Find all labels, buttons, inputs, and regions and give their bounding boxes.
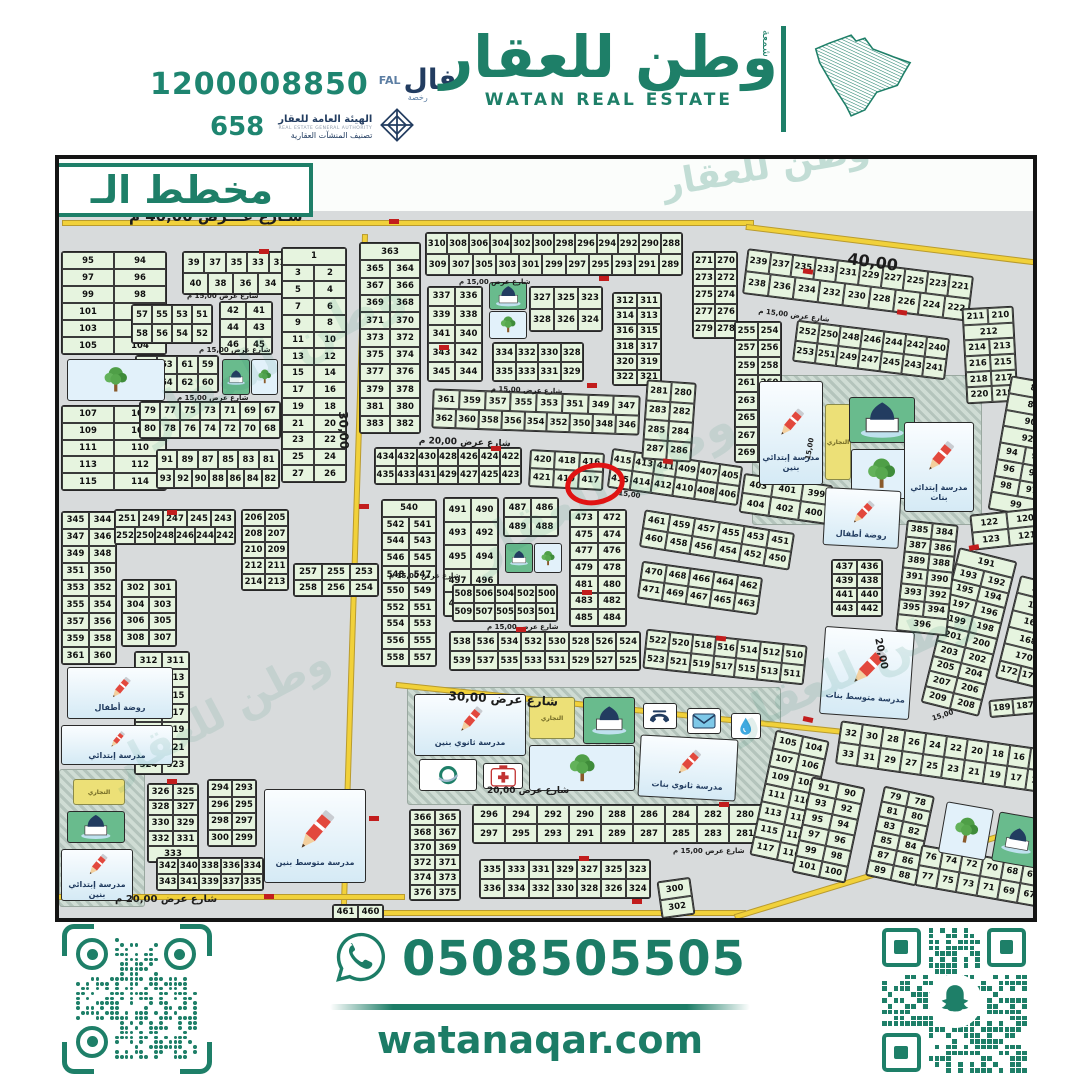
plot-27: 27 <box>899 751 923 775</box>
plot-261: 261 <box>735 375 758 393</box>
plot-486: 486 <box>531 498 558 517</box>
plot-block: 189187185 <box>988 694 1037 718</box>
red-mark <box>167 510 177 515</box>
plot-383: 383 <box>360 416 390 433</box>
plot-295: 295 <box>505 824 537 843</box>
plot-554: 554 <box>382 616 409 633</box>
plot-546: 546 <box>382 550 409 567</box>
school-block: مدرسة ثانوي بنات <box>637 734 738 801</box>
plot-91: 91 <box>157 450 177 469</box>
plot-322: 322 <box>613 370 637 385</box>
plot-215: 215 <box>990 354 1016 371</box>
plot-325: 325 <box>173 784 198 800</box>
plot-369: 369 <box>360 295 390 312</box>
plot-344: 344 <box>455 362 482 381</box>
plot-306: 306 <box>469 233 490 254</box>
plot-23: 23 <box>282 432 314 449</box>
kindergarten-block: روضة أطفال <box>823 487 902 549</box>
plot-291: 291 <box>569 824 601 843</box>
plot-85: 85 <box>218 450 238 469</box>
plot-19: 19 <box>282 398 314 415</box>
whatsapp-icon <box>334 930 388 988</box>
commercial-label: التجاري <box>541 715 563 722</box>
plot-556: 556 <box>382 633 409 650</box>
facility-label: مدرسة إبتدائي <box>88 751 145 760</box>
red-mark <box>264 894 274 899</box>
plot-376: 376 <box>390 364 420 381</box>
plot-254: 254 <box>758 322 781 340</box>
plot-block: 3633653643673663693683713703733723753743… <box>359 242 421 434</box>
plot-241: 241 <box>922 357 946 379</box>
plot-252: 252 <box>796 321 820 343</box>
plot-block: 4734724754744774764794784814804834824854… <box>569 509 627 627</box>
plot-185: 185 <box>1036 695 1037 713</box>
plot-296: 296 <box>473 805 505 824</box>
plot-354: 354 <box>89 596 116 613</box>
plot-320: 320 <box>613 354 637 369</box>
plot-528: 528 <box>569 632 593 651</box>
plot-450: 450 <box>764 548 792 570</box>
brand-vertical-word: شمعة <box>760 30 773 132</box>
plot-430: 430 <box>417 448 438 466</box>
street-label: شارع عرض 15,00 م <box>187 292 259 300</box>
plot-81: 81 <box>259 450 279 469</box>
plot-489: 489 <box>504 517 531 536</box>
plot-340: 340 <box>178 858 199 874</box>
plot-73: 73 <box>200 402 220 420</box>
plot-534: 534 <box>498 632 522 651</box>
plot-330: 330 <box>538 343 561 362</box>
plot-56: 56 <box>152 324 172 343</box>
plot-553: 553 <box>409 616 436 633</box>
plot-536: 536 <box>474 632 498 651</box>
plot-375: 375 <box>435 885 460 900</box>
plot-365: 365 <box>360 260 390 277</box>
plot-block: 4344324304284264244224354334314294274254… <box>374 447 522 485</box>
red-mark <box>587 383 597 388</box>
plot-256: 256 <box>322 580 350 596</box>
plot-242: 242 <box>903 334 927 356</box>
plot-542: 542 <box>382 517 409 534</box>
plot-360: 360 <box>89 647 116 664</box>
plot-312: 312 <box>613 293 637 308</box>
plot-263: 263 <box>735 392 758 410</box>
plot-298: 298 <box>208 813 232 830</box>
plot-61: 61 <box>177 356 198 374</box>
plot-500: 500 <box>536 585 557 603</box>
mosque-icon <box>489 282 527 310</box>
red-mark <box>516 627 526 632</box>
plot-443: 443 <box>832 602 857 616</box>
plot-84: 84 <box>244 469 261 488</box>
plot-465: 465 <box>709 590 735 611</box>
snapchat-ghost-icon <box>928 974 982 1028</box>
plot-427: 427 <box>458 466 479 484</box>
plot-361: 361 <box>62 647 89 664</box>
plot-251: 251 <box>115 510 139 527</box>
plot-298: 298 <box>554 233 575 254</box>
plot-58: 58 <box>132 324 152 343</box>
plot-block: 2522502482462442422402532512492472452432… <box>792 320 950 380</box>
plot-284: 284 <box>665 805 697 824</box>
plot-488: 488 <box>531 517 558 536</box>
plot-255: 255 <box>735 322 758 340</box>
plot-359: 359 <box>459 390 485 410</box>
plot-250: 250 <box>135 527 155 544</box>
plot-332: 332 <box>516 343 539 362</box>
plot-425: 425 <box>479 466 500 484</box>
brand-divider-bar <box>781 26 786 132</box>
plot-272: 272 <box>715 269 737 286</box>
plot-42: 42 <box>220 302 246 319</box>
plot-328: 328 <box>530 309 554 331</box>
plot-98: 98 <box>114 286 166 303</box>
facility-label: روضة أطفال <box>95 703 146 712</box>
facility-label: مدرسة متوسط بنات <box>825 691 905 706</box>
plot-59: 59 <box>198 356 219 374</box>
plot-543: 543 <box>409 533 436 550</box>
plot-290: 290 <box>569 805 601 824</box>
plot-26: 26 <box>902 730 926 754</box>
mosque-icon <box>67 811 125 843</box>
plot-483: 483 <box>570 593 598 610</box>
plot-341: 341 <box>428 325 455 344</box>
plot-434: 434 <box>375 448 396 466</box>
plot-295: 295 <box>589 254 612 275</box>
plot-block: 470468466464462471469467465463 <box>637 561 763 616</box>
plot-block: 294293296295298297300299 <box>207 779 257 847</box>
plot-326: 326 <box>554 309 578 331</box>
plot-357: 357 <box>485 391 511 411</box>
plot-101: 101 <box>62 303 114 320</box>
plot-437: 437 <box>832 560 857 574</box>
plot-block: 5755535158565452 <box>131 304 213 344</box>
plot-370: 370 <box>410 840 435 855</box>
plot-338: 338 <box>199 858 220 874</box>
plot-414: 414 <box>629 471 653 493</box>
plot-533: 533 <box>521 651 545 670</box>
plot-402: 402 <box>769 497 801 520</box>
brand-logo: وطن للعقار WATAN REAL ESTATE <box>440 26 778 110</box>
authority-logo: الهيئة العامة للعقار REAL ESTATE GENERAL… <box>278 106 416 148</box>
red-mark <box>599 276 609 281</box>
plot-551: 551 <box>409 600 436 617</box>
plot-328: 328 <box>577 879 601 898</box>
plot-324: 324 <box>626 879 650 898</box>
plot-333: 333 <box>516 362 539 381</box>
plot-255: 255 <box>322 564 350 580</box>
classification-number: 658 <box>210 112 264 142</box>
plot-341: 341 <box>178 874 199 890</box>
plot-361: 361 <box>433 389 459 409</box>
plot-432: 432 <box>396 448 417 466</box>
plot-493: 493 <box>444 522 471 546</box>
plot-332: 332 <box>529 879 553 898</box>
plot-336: 336 <box>221 858 242 874</box>
plot-16: 16 <box>314 382 346 399</box>
comm-block: التجاري <box>825 404 851 480</box>
plot-423: 423 <box>500 466 521 484</box>
plot-87: 87 <box>198 450 218 469</box>
plot-349: 349 <box>587 395 613 415</box>
plot-482: 482 <box>598 593 626 610</box>
plot-345: 345 <box>428 362 455 381</box>
plot-519: 519 <box>689 653 714 674</box>
street-label: شارع عرض 15,00 م <box>459 278 531 286</box>
plot-334: 334 <box>493 343 516 362</box>
plot-253: 253 <box>350 564 378 580</box>
plot-3: 3 <box>282 265 314 282</box>
plot-301: 301 <box>149 580 176 597</box>
plot-285: 285 <box>644 419 669 440</box>
comm-block: التجاري <box>73 779 125 805</box>
street-label: 30,00 <box>336 411 351 449</box>
plot-292: 292 <box>618 233 639 254</box>
plot-27: 27 <box>282 465 314 482</box>
plot-71: 71 <box>220 402 240 420</box>
plot-529: 529 <box>569 651 593 670</box>
plot-256: 256 <box>758 340 781 358</box>
plot-521: 521 <box>666 651 691 672</box>
red-mark <box>491 446 501 451</box>
plot-213: 213 <box>989 338 1015 355</box>
plot-406: 406 <box>715 483 739 505</box>
plot-258: 258 <box>294 580 322 596</box>
plot-456: 456 <box>689 536 717 558</box>
plot-339: 339 <box>199 874 220 890</box>
red-mark <box>719 802 729 807</box>
kindergarten-block: روضة أطفال <box>67 667 173 719</box>
plot-356: 356 <box>501 411 525 431</box>
whatsapp-number: 0508505505 <box>402 931 746 987</box>
plot-4: 4 <box>314 281 346 298</box>
plot-314: 314 <box>613 308 637 323</box>
plot-274: 274 <box>715 286 737 303</box>
plot-block: 487486489488 <box>503 497 559 537</box>
plot-251: 251 <box>815 343 839 365</box>
street-label: شارع عرض 15,00 م <box>199 346 271 354</box>
plot-429: 429 <box>438 466 459 484</box>
plot-92: 92 <box>174 469 191 488</box>
plot-367: 367 <box>435 825 460 840</box>
plot-36: 36 <box>233 273 258 294</box>
plot-33: 33 <box>247 252 268 273</box>
plot-294: 294 <box>597 233 618 254</box>
plot-327: 327 <box>577 860 601 879</box>
street-label: شارع عرض 15,00 م <box>177 394 249 402</box>
plot-373: 373 <box>435 870 460 885</box>
red-mark <box>579 856 589 861</box>
plot-452: 452 <box>739 544 767 566</box>
plot-block: 300302 <box>657 877 696 919</box>
plot-24: 24 <box>314 449 346 466</box>
plot-234: 234 <box>793 277 821 302</box>
plot-305: 305 <box>149 613 176 630</box>
plot-212: 212 <box>242 558 265 574</box>
plot-306: 306 <box>122 613 149 630</box>
plot-412: 412 <box>651 474 675 496</box>
street-label: 15,00 <box>931 708 955 722</box>
plot-469: 469 <box>662 583 688 604</box>
plot-270: 270 <box>715 252 737 269</box>
plot-514: 514 <box>736 639 761 660</box>
plot-433: 433 <box>396 466 417 484</box>
plot-246: 246 <box>175 527 195 544</box>
plot-block: 461460 <box>332 904 384 920</box>
plot-86: 86 <box>227 469 244 488</box>
plot-532: 532 <box>521 632 545 651</box>
plot-340: 340 <box>455 325 482 344</box>
plot-487: 487 <box>504 498 531 517</box>
plot-454: 454 <box>714 540 742 562</box>
plot-248: 248 <box>155 527 175 544</box>
plot-block: 508506504502500509507505503501 <box>452 584 558 622</box>
plot-335: 335 <box>493 362 516 381</box>
authority-title-ar: الهيئة العامة للعقار <box>278 114 372 126</box>
plot-242: 242 <box>215 527 235 544</box>
plot-225: 225 <box>903 269 928 294</box>
plot-315: 315 <box>637 324 661 339</box>
plot-511: 511 <box>780 663 805 684</box>
plot-331: 331 <box>529 860 553 879</box>
plot-544: 544 <box>382 533 409 550</box>
plot-244: 244 <box>195 527 215 544</box>
red-mark <box>439 345 449 350</box>
plot-325: 325 <box>554 287 578 309</box>
plot-477: 477 <box>570 543 598 560</box>
plot-331: 331 <box>173 831 198 847</box>
plot-258: 258 <box>758 357 781 375</box>
plot-329: 329 <box>173 815 198 831</box>
plot-22: 22 <box>944 736 968 760</box>
plot-block: 281280283282285284287286 <box>641 379 696 462</box>
plot-334: 334 <box>242 858 263 874</box>
plot-299: 299 <box>232 830 256 847</box>
plot-473: 473 <box>570 510 598 527</box>
facility-label: مدرسة إبتدائي بنات <box>905 483 973 501</box>
plot-51: 51 <box>192 305 212 324</box>
plot-507: 507 <box>474 603 495 621</box>
plot-512: 512 <box>759 642 784 663</box>
plot-77: 77 <box>160 402 180 420</box>
facility-label: مدرسة إبتدائي بنين <box>760 453 822 471</box>
plot-476: 476 <box>598 543 626 560</box>
plot-347: 347 <box>62 529 89 546</box>
plot-377: 377 <box>360 364 390 381</box>
plot-355: 355 <box>510 392 536 412</box>
plot-495: 495 <box>444 545 471 569</box>
plot-221: 221 <box>948 274 973 299</box>
plot-82: 82 <box>262 469 279 488</box>
fal-logo-latin: FAL <box>379 75 401 86</box>
plot-345: 345 <box>62 512 89 529</box>
plot-111: 111 <box>62 440 114 457</box>
plot-304: 304 <box>490 233 511 254</box>
phone-block <box>643 703 677 729</box>
plot-271: 271 <box>693 252 715 269</box>
red-mark <box>389 219 399 224</box>
plot-360: 360 <box>455 409 479 429</box>
plot-93: 93 <box>157 469 174 488</box>
plot-14: 14 <box>314 365 346 382</box>
plot-346: 346 <box>89 529 116 546</box>
plot-218: 218 <box>966 371 992 388</box>
plot-265: 265 <box>735 410 758 428</box>
plot-214: 214 <box>242 574 265 590</box>
plot-472: 472 <box>598 510 626 527</box>
plot-410: 410 <box>672 477 696 499</box>
plot-342: 342 <box>455 343 482 362</box>
plot-336: 336 <box>455 287 482 306</box>
plot-301: 301 <box>519 254 542 275</box>
plot-245: 245 <box>879 351 903 373</box>
plot-463: 463 <box>733 593 759 614</box>
plot-40: 40 <box>183 273 208 294</box>
subdivision-map: مخطط الـ 9594979699981011001031021051041… <box>55 155 1037 922</box>
plot-303: 303 <box>149 597 176 614</box>
plot-25: 25 <box>282 449 314 466</box>
plot-237: 237 <box>768 252 793 277</box>
plot-526: 526 <box>593 632 617 651</box>
plot-94: 94 <box>114 252 166 269</box>
plot-247: 247 <box>858 349 882 371</box>
plot-252: 252 <box>115 527 135 544</box>
plot-279: 279 <box>693 321 715 338</box>
plot-474: 474 <box>598 527 626 544</box>
plot-289: 289 <box>601 824 633 843</box>
plot-69: 69 <box>240 402 260 420</box>
plot-7: 7 <box>282 298 314 315</box>
plot-block: 5385365345325305285265245395375355335315… <box>449 631 641 671</box>
tree-icon <box>529 745 635 791</box>
plot-378: 378 <box>390 381 420 398</box>
plot-38: 38 <box>208 273 233 294</box>
plot-block: 302301304303306305308307 <box>121 579 177 647</box>
plot-235: 235 <box>791 255 816 280</box>
plot-292: 292 <box>537 805 569 824</box>
plot-205: 205 <box>265 510 288 526</box>
plot-257: 257 <box>735 340 758 358</box>
plot-21: 21 <box>962 760 986 784</box>
plot-525: 525 <box>616 651 640 670</box>
plot-372: 372 <box>410 855 435 870</box>
plot-block: 257255253258256254 <box>293 563 379 597</box>
street-label: شارع عرض 15,00 م <box>673 847 745 855</box>
plot-335: 335 <box>242 874 263 890</box>
plot-479: 479 <box>570 560 598 577</box>
plot-block: 437436439438441440443442 <box>831 559 883 617</box>
plot-353: 353 <box>62 580 89 597</box>
plot-310: 310 <box>426 233 447 254</box>
plot-90: 90 <box>192 469 209 488</box>
plot-78: 78 <box>160 420 180 438</box>
plot-531: 531 <box>545 651 569 670</box>
plot-490: 490 <box>471 498 498 522</box>
plot-353: 353 <box>536 393 562 413</box>
plot-438: 438 <box>857 574 882 588</box>
plot-288: 288 <box>601 805 633 824</box>
plot-352: 352 <box>89 580 116 597</box>
plot-block: 2962942922902882862842822802782972952932… <box>472 804 794 844</box>
plot-220: 220 <box>967 386 993 403</box>
plot-297: 297 <box>566 254 589 275</box>
plot-539: 539 <box>450 651 474 670</box>
plot-367: 367 <box>360 278 390 295</box>
plot-303: 303 <box>496 254 519 275</box>
plot-213: 213 <box>265 574 288 590</box>
plot-552: 552 <box>382 600 409 617</box>
plot-43: 43 <box>246 319 272 336</box>
